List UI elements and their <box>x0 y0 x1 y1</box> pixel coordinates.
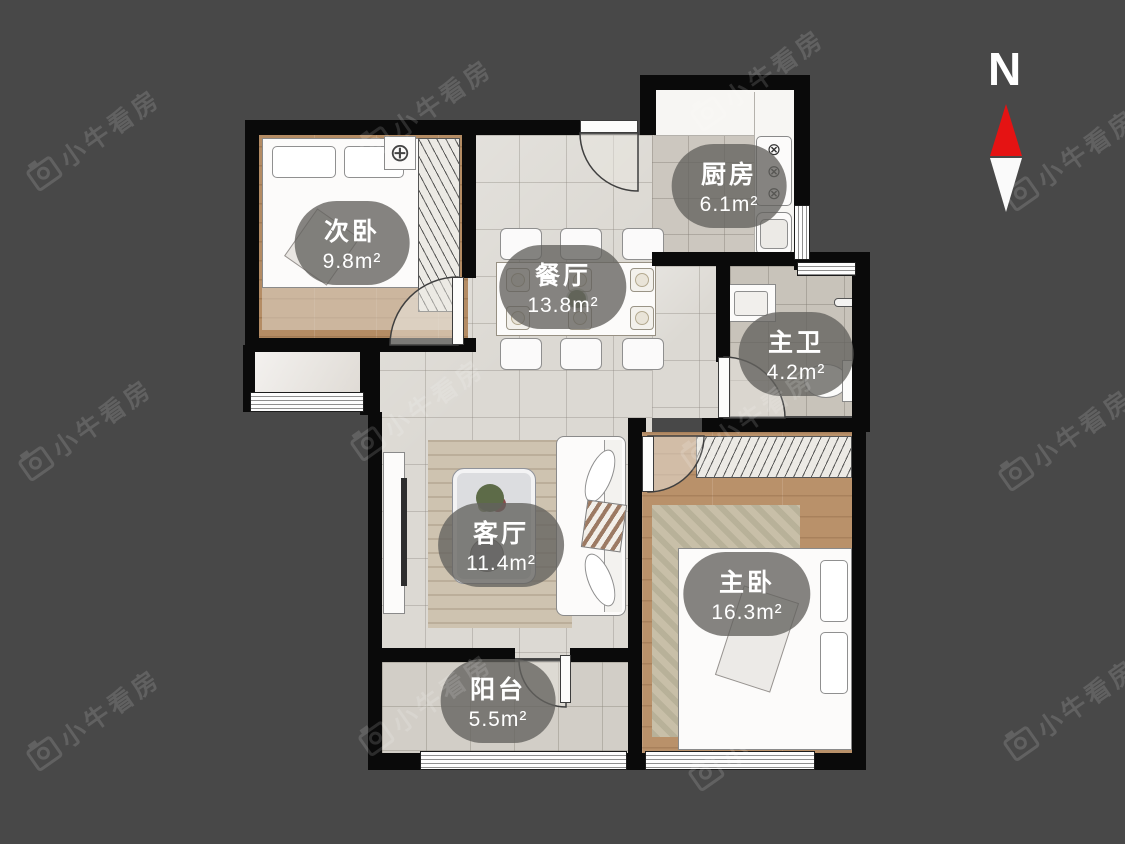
camera-icon <box>1002 724 1041 762</box>
camera-icon <box>25 154 64 192</box>
watermark-text: 小牛看房 <box>1029 649 1125 745</box>
kitchen-sink-basin <box>760 219 788 249</box>
throw-blanket <box>581 499 627 552</box>
master-bedroom-door-leaf <box>642 436 654 492</box>
dining-chair <box>500 338 542 370</box>
dining-chair <box>560 338 602 370</box>
bathroom-sink-basin <box>734 291 768 316</box>
tv <box>401 478 407 586</box>
room-label-kitchen: 厨房 6.1m² <box>672 144 787 228</box>
room-area: 11.4m² <box>466 552 536 576</box>
wall <box>852 252 870 430</box>
ceiling-fan-glyph: ⊕ <box>390 139 411 167</box>
wardrobe-master <box>696 436 852 478</box>
wall <box>628 418 642 770</box>
room-area: 4.2m² <box>767 361 826 385</box>
room-area: 9.8m² <box>323 250 382 274</box>
room-label-bathroom: 主卫 4.2m² <box>739 312 854 396</box>
room-name: 餐厅 <box>527 256 598 292</box>
room-area: 5.5m² <box>469 708 528 732</box>
room-name: 主卫 <box>767 323 826 359</box>
watermark: 小牛看房 <box>994 379 1125 496</box>
wall <box>245 120 259 352</box>
pillow <box>272 146 336 178</box>
watermark-text: 小牛看房 <box>44 369 160 465</box>
room-area: 13.8m² <box>527 294 598 318</box>
watermark: 小牛看房 <box>22 79 168 196</box>
wall <box>645 75 810 90</box>
bathroom-door-leaf <box>718 357 730 418</box>
watermark-text: 小牛看房 <box>52 659 168 755</box>
secondary-bedroom-door-leaf <box>452 277 464 345</box>
placemat <box>630 268 654 292</box>
wall <box>716 252 730 362</box>
wall <box>794 88 810 210</box>
placemat <box>630 306 654 330</box>
room-area: 6.1m² <box>700 193 759 217</box>
watermark: 小牛看房 <box>14 369 160 486</box>
wall <box>245 120 476 135</box>
camera-icon <box>997 454 1036 492</box>
wall <box>852 418 866 770</box>
camera-icon <box>25 734 64 772</box>
pillow <box>820 632 848 694</box>
room-name: 阳台 <box>469 670 528 706</box>
room-label-living: 客厅 11.4m² <box>438 503 564 587</box>
room-name: 次卧 <box>323 212 382 248</box>
room-name: 客厅 <box>466 514 536 550</box>
floor-plan-page: { "watermark": { "text": "小牛看房" }, "nort… <box>0 0 1125 844</box>
watermark-text: 小牛看房 <box>1029 99 1125 195</box>
room-label-master-bedroom: 主卧 16.3m² <box>683 552 810 636</box>
wall <box>468 120 580 135</box>
room-label-balcony: 阳台 5.5m² <box>441 659 556 743</box>
bay-window-floor <box>253 352 362 394</box>
dining-chair <box>622 338 664 370</box>
wall <box>368 412 382 770</box>
north-arrow-icon <box>990 104 1022 156</box>
south-arrow-icon <box>990 158 1022 212</box>
wall <box>462 120 476 278</box>
window <box>797 262 856 276</box>
watermark: 小牛看房 <box>999 649 1125 766</box>
balcony-door-leaf <box>560 655 571 703</box>
watermark: 小牛看房 <box>22 659 168 776</box>
wall <box>570 648 642 662</box>
ceiling-fan-icon: ⊕ <box>384 136 416 170</box>
watermark-text: 小牛看房 <box>1024 379 1125 475</box>
window <box>420 751 627 770</box>
wall <box>702 418 870 432</box>
room-name: 主卧 <box>711 563 782 599</box>
window <box>794 205 810 260</box>
north-label: N <box>988 42 1021 96</box>
window <box>645 751 815 770</box>
room-name: 厨房 <box>700 155 759 191</box>
room-area: 16.3m² <box>711 601 782 625</box>
camera-icon <box>17 444 56 482</box>
room-label-secondary-bedroom: 次卧 9.8m² <box>295 201 410 285</box>
window <box>250 392 364 412</box>
watermark-text: 小牛看房 <box>52 79 168 175</box>
pillow <box>820 560 848 622</box>
room-label-dining: 餐厅 13.8m² <box>499 245 626 329</box>
entry-door-leaf <box>580 120 638 133</box>
